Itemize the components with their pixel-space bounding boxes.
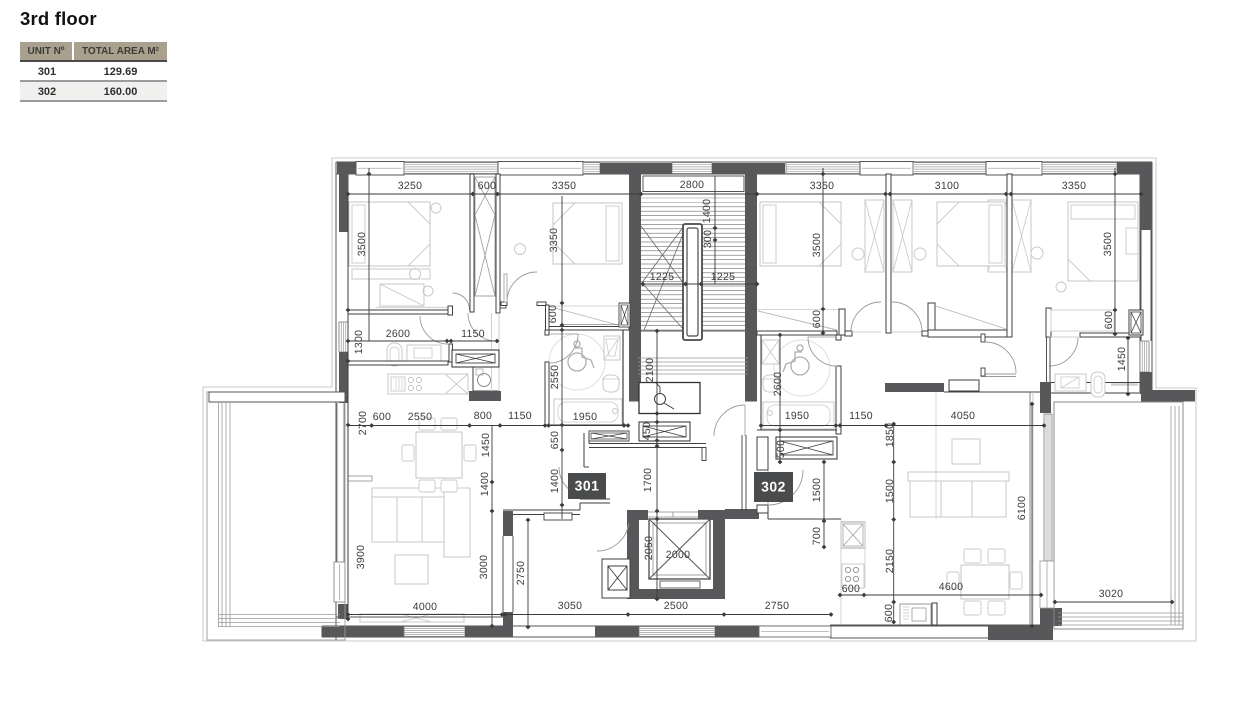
svg-text:2000: 2000 — [666, 549, 691, 561]
svg-text:2150: 2150 — [884, 549, 896, 574]
svg-text:2700: 2700 — [357, 411, 369, 436]
svg-text:1950: 1950 — [785, 410, 810, 422]
svg-text:700: 700 — [811, 527, 823, 545]
svg-text:3350: 3350 — [810, 180, 835, 192]
svg-text:3350: 3350 — [552, 180, 577, 192]
svg-text:600: 600 — [1103, 311, 1115, 329]
svg-text:1950: 1950 — [573, 411, 598, 423]
svg-text:3900: 3900 — [355, 545, 367, 570]
svg-text:1400: 1400 — [479, 472, 491, 497]
svg-text:302: 302 — [761, 479, 786, 495]
svg-text:6100: 6100 — [1016, 496, 1028, 521]
svg-text:3350: 3350 — [548, 228, 560, 253]
svg-text:2750: 2750 — [765, 600, 790, 612]
svg-text:600: 600 — [811, 310, 823, 328]
svg-text:1850: 1850 — [884, 423, 896, 448]
svg-text:300: 300 — [702, 230, 714, 248]
svg-text:2050: 2050 — [643, 536, 655, 561]
svg-text:3050: 3050 — [558, 600, 583, 612]
svg-text:1225: 1225 — [650, 271, 675, 283]
svg-text:600: 600 — [547, 305, 559, 323]
svg-text:3500: 3500 — [1102, 232, 1114, 257]
svg-text:1700: 1700 — [642, 468, 654, 493]
svg-text:1500: 1500 — [884, 479, 896, 504]
svg-text:2550: 2550 — [549, 365, 561, 390]
svg-text:3020: 3020 — [1099, 588, 1124, 600]
svg-text:3500: 3500 — [811, 233, 823, 258]
svg-text:4000: 4000 — [413, 601, 438, 613]
svg-text:1450: 1450 — [480, 433, 492, 458]
svg-text:4050: 4050 — [951, 410, 976, 422]
svg-text:4600: 4600 — [939, 581, 964, 593]
svg-text:2500: 2500 — [664, 600, 689, 612]
svg-text:800: 800 — [474, 410, 492, 422]
svg-text:2100: 2100 — [644, 358, 656, 383]
svg-text:600: 600 — [883, 604, 895, 622]
svg-text:2550: 2550 — [408, 411, 433, 423]
svg-text:1400: 1400 — [549, 469, 561, 494]
svg-text:1225: 1225 — [711, 271, 736, 283]
svg-text:1450: 1450 — [1116, 347, 1128, 372]
svg-text:3100: 3100 — [935, 180, 960, 192]
svg-text:1500: 1500 — [811, 478, 823, 503]
svg-text:600: 600 — [478, 180, 496, 192]
svg-text:2750: 2750 — [515, 561, 527, 586]
svg-text:1150: 1150 — [849, 410, 873, 422]
svg-text:600: 600 — [373, 411, 391, 423]
svg-text:3250: 3250 — [398, 180, 423, 192]
svg-text:650: 650 — [549, 431, 561, 449]
svg-text:600: 600 — [842, 583, 860, 595]
svg-text:450: 450 — [641, 422, 653, 440]
svg-text:500: 500 — [775, 440, 787, 458]
svg-text:301: 301 — [575, 478, 600, 494]
svg-text:1150: 1150 — [461, 328, 485, 340]
svg-text:2600: 2600 — [772, 372, 784, 397]
svg-text:1400: 1400 — [701, 199, 713, 224]
svg-text:2800: 2800 — [680, 179, 705, 191]
svg-text:3500: 3500 — [356, 232, 368, 257]
svg-text:2600: 2600 — [386, 328, 411, 340]
svg-text:3000: 3000 — [478, 555, 490, 580]
svg-text:1300: 1300 — [353, 330, 365, 355]
svg-text:3350: 3350 — [1062, 180, 1087, 192]
svg-text:1150: 1150 — [508, 410, 532, 422]
